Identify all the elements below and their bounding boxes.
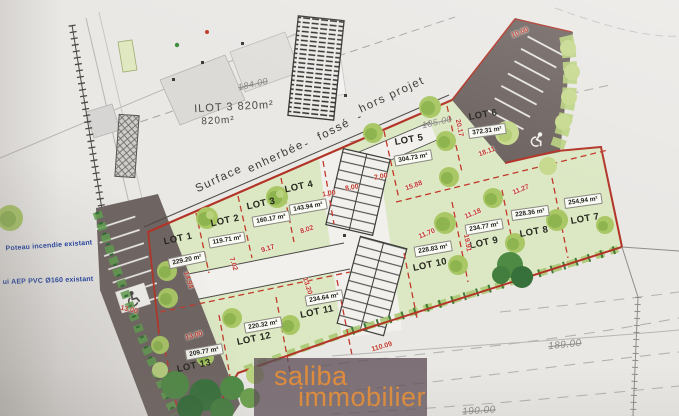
bush-icon — [539, 157, 557, 175]
tree-icon — [546, 209, 568, 231]
crosshatched-area — [115, 114, 139, 177]
bush-icon — [555, 114, 571, 130]
tree-icon — [363, 123, 383, 143]
site-plan-photo: ILOT 3 820m² 820m² Surface enherbée - fo… — [0, 0, 679, 416]
tree-icon — [434, 212, 456, 234]
tree-icon — [158, 288, 178, 308]
contour-label: 190.00 — [462, 404, 496, 416]
bush-icon — [560, 40, 576, 56]
tree-icon — [151, 336, 169, 354]
watermark-line2: immobilier — [298, 384, 426, 411]
tree-icon — [280, 315, 300, 335]
tree-icon — [448, 255, 468, 275]
bush-icon — [564, 64, 580, 80]
tree-icon — [436, 131, 456, 151]
watermark: saliba immobilier — [254, 358, 427, 416]
tree-icon — [222, 308, 242, 328]
bush-icon — [561, 89, 577, 105]
hatched-strip — [288, 16, 344, 120]
tree-icon — [483, 188, 503, 208]
tree-icon — [419, 96, 441, 118]
ilot-area-label: 820m² — [201, 115, 235, 128]
tree-icon — [439, 167, 459, 187]
site-plan-drawing — [0, 0, 679, 416]
